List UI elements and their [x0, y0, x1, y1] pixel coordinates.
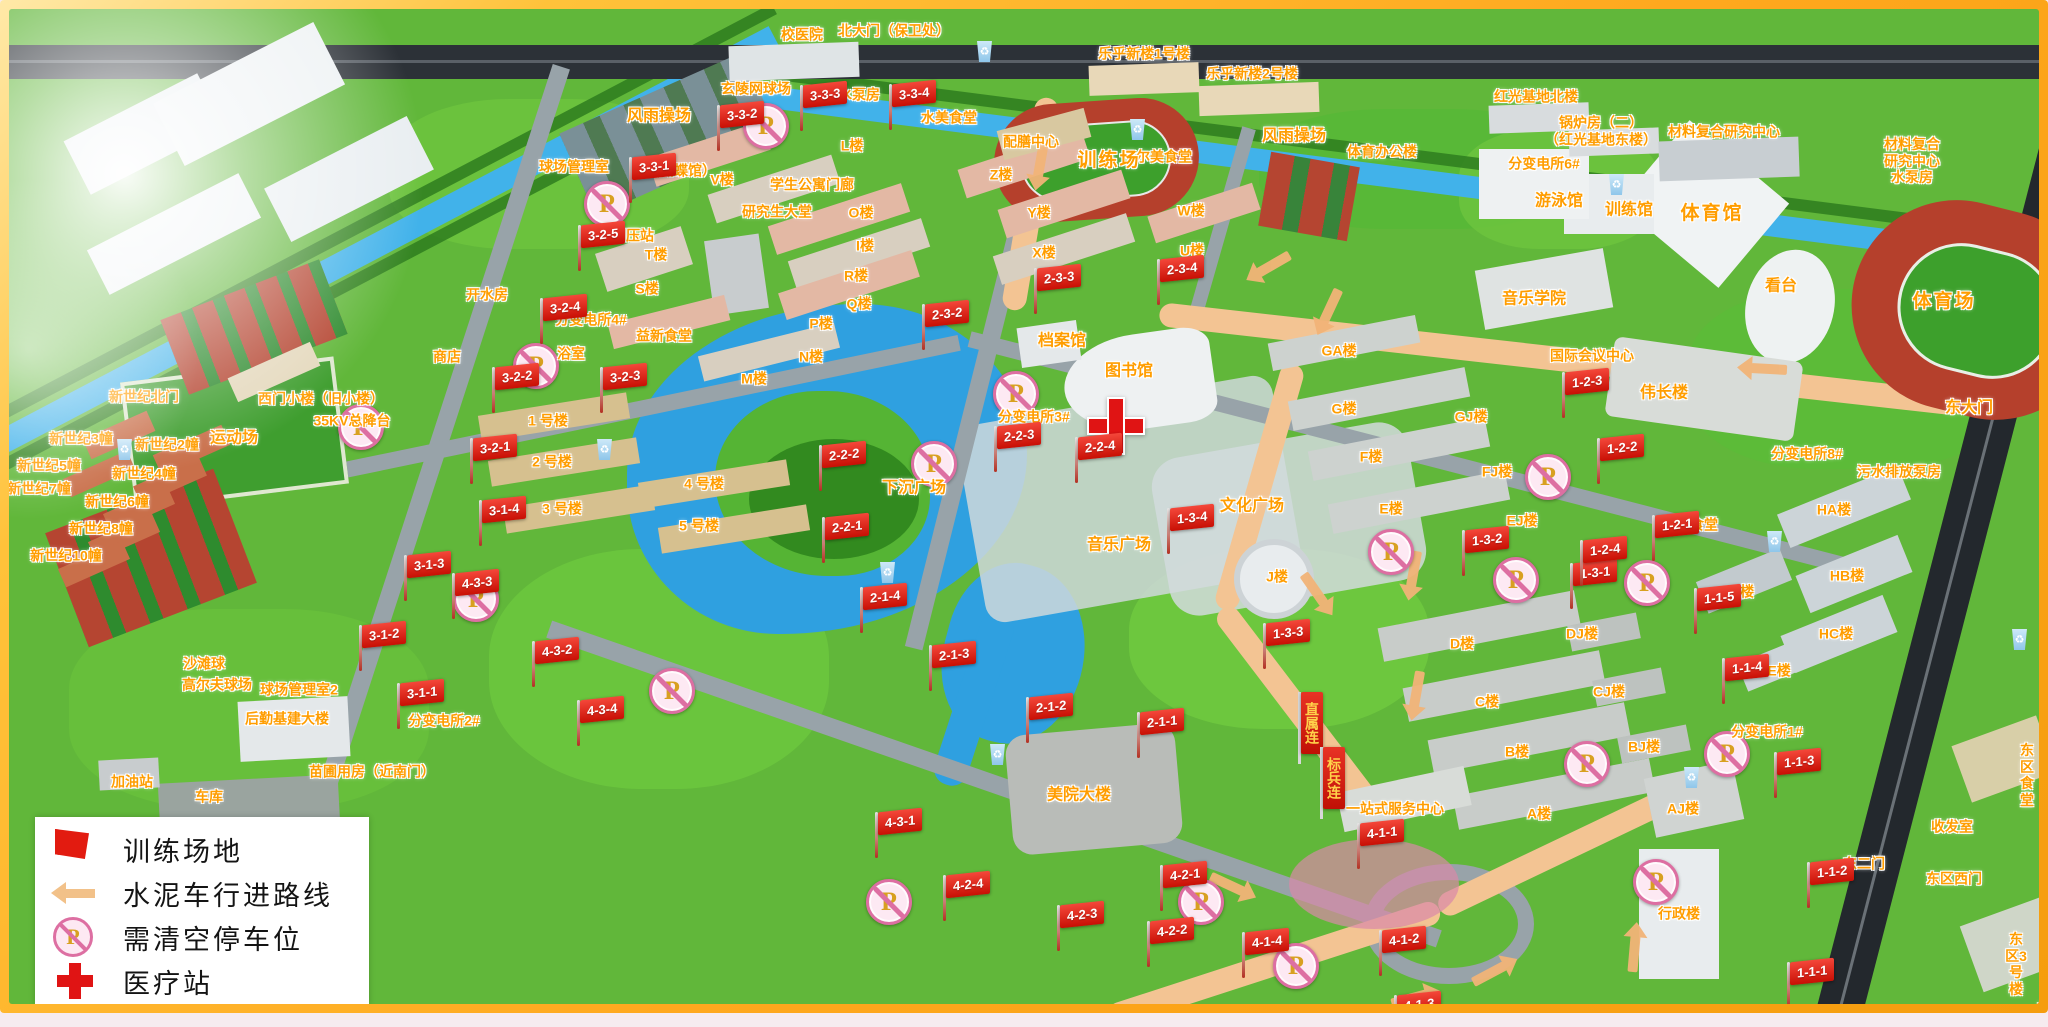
flag-label: 1-3-3	[1266, 619, 1310, 647]
route-arrow-icon	[1256, 251, 1292, 278]
place-label: 北大门（保卫处）	[838, 23, 950, 40]
place-label: 高尔夫球场	[182, 677, 252, 694]
place-label: 新世纪北门	[109, 389, 179, 406]
flag-label: 1-1-5	[1697, 584, 1741, 612]
place-label: 运动场	[210, 430, 258, 449]
flag-label: 4-2-3	[1060, 901, 1104, 929]
place-label: 乐乎新楼1号楼	[1098, 46, 1190, 63]
place-label: 尔美食堂	[1136, 149, 1192, 166]
flag-label: 4-1-2	[1382, 926, 1426, 954]
place-label: 新世纪10幢	[30, 548, 102, 565]
place-label: T楼	[645, 247, 668, 264]
flag-label: 3-2-4	[543, 294, 587, 322]
flag-label: 1-2-1	[1655, 511, 1699, 539]
legend-item: 训练场地	[51, 827, 363, 871]
place-label: 训练馆	[1605, 202, 1653, 221]
place-label: 材料复合 研究中心 水泵房	[1884, 136, 1940, 186]
place-label: 2 号楼	[532, 454, 572, 471]
place-label: 文化广场	[1220, 498, 1284, 517]
place-label: 3 号楼	[542, 501, 582, 518]
legend-item: 水泥车行进路线	[51, 871, 363, 915]
place-label: Z楼	[990, 167, 1013, 184]
place-label: 新世纪2幢	[135, 437, 199, 454]
flag-label: 2-1-1	[1140, 708, 1184, 736]
flag-label: 4-2-2	[1150, 917, 1194, 945]
place-label: 东区	[2037, 1000, 2039, 1004]
place-label: 车库	[195, 789, 223, 806]
place-label: HC楼	[1819, 626, 1853, 643]
place-label: BJ楼	[1628, 739, 1660, 756]
place-label: EJ楼	[1506, 513, 1537, 530]
place-label: P楼	[809, 316, 832, 333]
flag-label: 1-1-1	[1790, 958, 1834, 986]
place-label: 后勤基建大楼	[245, 711, 329, 728]
place-label: 下沉广场	[882, 480, 946, 499]
place-label: C楼	[1475, 694, 1499, 711]
place-label: 伟长楼	[1640, 385, 1688, 404]
place-label: 学生公寓门廊	[770, 177, 854, 194]
flag-label: 2-1-3	[932, 641, 976, 669]
place-label: N楼	[799, 349, 823, 366]
legend-icon	[51, 827, 97, 871]
place-label: 分变电所6#	[1508, 156, 1580, 173]
place-label: 浴室	[557, 346, 585, 363]
flag-label: 2-3-3	[1037, 264, 1081, 292]
map-decor	[1658, 137, 1799, 182]
place-label: 校医院	[781, 27, 823, 44]
legend-label: 医疗站	[123, 962, 213, 1001]
flag-label: 2-1-4	[863, 583, 907, 611]
place-label: GA楼	[1322, 343, 1357, 360]
legend-label: 训练场地	[123, 830, 243, 869]
place-label: HA楼	[1817, 502, 1851, 519]
place-label: 分变电所8#	[1771, 446, 1843, 463]
flag-label: 1-1-2	[1810, 858, 1854, 886]
place-label: 污水排放泵房	[1857, 464, 1941, 481]
legend-icon: P	[51, 915, 97, 959]
flag-label: 3-2-5	[581, 221, 625, 249]
recycle-bin-icon: ♻	[989, 744, 1006, 765]
flag-label: 3-2-3	[603, 363, 647, 391]
flag-label: 标兵连	[1323, 747, 1345, 809]
place-label: 新世纪5幢	[17, 458, 81, 475]
map-decor	[238, 696, 351, 762]
map-decor	[1475, 248, 1613, 330]
flag-label: 4-3-4	[580, 696, 624, 724]
place-label: DJ楼	[1566, 626, 1598, 643]
flag-label: 4-3-1	[878, 808, 922, 836]
place-label: 商店	[433, 349, 461, 366]
flag-label: 4-1-4	[1245, 928, 1289, 956]
flag-label: 1-3-4	[1170, 504, 1214, 532]
flag-label: 3-3-1	[632, 153, 676, 181]
training-flag-icon	[55, 829, 89, 859]
legend-icon	[51, 871, 97, 915]
flag-label: 直属连	[1301, 692, 1323, 754]
place-label: I楼	[856, 238, 874, 255]
flag-label: 1-2-2	[1600, 434, 1644, 462]
map-decor	[1258, 152, 1360, 241]
place-label: 加油站	[111, 774, 153, 791]
legend-item: P需清空停车位	[51, 915, 363, 959]
route-arrow-icon	[1319, 288, 1343, 325]
place-label: 游泳馆	[1535, 193, 1583, 212]
no-parking-icon: P	[1368, 529, 1414, 575]
map-decor	[1199, 82, 1320, 116]
flag-label: 3-3-4	[892, 80, 936, 108]
flag-label: 3-3-2	[720, 101, 764, 129]
place-label: 训练场	[1077, 150, 1140, 172]
flag-label: 3-1-3	[407, 551, 451, 579]
place-label: 音乐广场	[1087, 537, 1151, 556]
no-parking-icon: P	[53, 917, 93, 957]
flag-label: 1-3-2	[1465, 526, 1509, 554]
flag-label: 1-2-4	[1583, 536, 1627, 564]
place-label: 看台	[1765, 278, 1797, 297]
place-label: 新世纪7幢	[9, 481, 71, 498]
place-label: 新世纪4幢	[112, 466, 176, 483]
place-label: R楼	[844, 268, 868, 285]
place-label: L楼	[841, 138, 864, 155]
legend-label: 需清空停车位	[123, 918, 303, 957]
place-label: 新世纪8幢	[69, 521, 133, 538]
place-label: 东区3号楼	[2005, 931, 2028, 997]
no-parking-icon: P	[866, 879, 912, 925]
place-label: 新世纪6幢	[85, 494, 149, 511]
flag-label: 3-2-2	[495, 363, 539, 391]
place-label: 分变电所2#	[408, 713, 480, 730]
flag-label: 4-1-1	[1360, 819, 1404, 847]
place-label: 配膳中心	[1003, 134, 1059, 151]
place-label: O楼	[849, 205, 874, 222]
place-label: 分变电所1#	[1731, 724, 1803, 741]
place-label: 锅炉房（二） （红光基地东楼）	[1545, 114, 1657, 147]
flag-label: 3-3-3	[803, 81, 847, 109]
no-parking-icon: P	[1493, 557, 1539, 603]
place-label: 乐乎新楼2号楼	[1206, 66, 1298, 83]
legend-item: 医疗站	[51, 959, 363, 1003]
place-label: 美院大楼	[1047, 787, 1111, 806]
no-parking-icon: P	[649, 668, 695, 714]
flag-label: 3-1-1	[400, 679, 444, 707]
place-label: 5 号楼	[679, 518, 719, 535]
place-label: 球场管理室2	[260, 682, 338, 699]
place-label: CJ楼	[1593, 684, 1625, 701]
place-label: 玄陵网球场	[721, 81, 791, 98]
flag-label: 4-2-1	[1163, 861, 1207, 889]
place-label: 风雨操场	[1262, 128, 1326, 147]
place-label: HB楼	[1830, 568, 1864, 585]
flag-label: 4-1-3	[1397, 991, 1441, 1004]
flag-label: 2-2-1	[825, 513, 869, 541]
place-label: 体育场	[1912, 291, 1975, 313]
map-decor	[1289, 839, 1459, 929]
place-label: G楼	[1332, 401, 1357, 418]
place-label: GJ楼	[1455, 409, 1488, 426]
legend: 训练场地水泥车行进路线P需清空停车位医疗站	[35, 817, 369, 1004]
place-label: X楼	[1032, 245, 1055, 262]
flag-label: 4-2-4	[946, 871, 990, 899]
place-label: 东区西门	[1926, 871, 1982, 888]
route-arrow-icon	[65, 889, 95, 898]
map-frame: 训练场地水泥车行进路线P需清空停车位医疗站 校医院北大门（保卫处）乐乎新楼1号楼…	[0, 0, 2048, 1013]
place-label: 4 号楼	[684, 476, 724, 493]
place-label: 1 号楼	[528, 413, 568, 430]
flag-label: 3-2-1	[473, 434, 517, 462]
no-parking-icon: P	[1624, 560, 1670, 606]
medical-cross-icon	[57, 963, 93, 999]
place-label: Y楼	[1027, 205, 1050, 222]
place-label: 收发室	[1931, 819, 1973, 836]
flag-label: 1-2-3	[1565, 368, 1609, 396]
recycle-bin-icon: ♻	[2011, 629, 2028, 650]
flag-label: 2-2-4	[1078, 433, 1122, 461]
place-label: 档案馆	[1038, 333, 1086, 352]
place-label: 体育馆	[1680, 203, 1743, 225]
map-decor	[1089, 62, 1200, 96]
place-label: 国际会议中心	[1550, 348, 1634, 365]
place-label: 苗圃用房（近南门）	[309, 764, 435, 781]
place-label: D楼	[1450, 636, 1474, 653]
flag-label: 2-1-2	[1029, 693, 1073, 721]
place-label: 新世纪3幢	[49, 431, 113, 448]
place-label: 材料复合研究中心	[1668, 124, 1780, 141]
place-label: 西门小楼（旧小楼）	[258, 391, 384, 408]
place-label: 球场管理室	[539, 159, 609, 176]
no-parking-icon: P	[1633, 859, 1679, 905]
route-arrow-icon	[1751, 363, 1787, 375]
place-label: 东大门	[1945, 400, 1993, 419]
place-label: 风雨操场	[627, 108, 691, 127]
flag-label: 3-1-2	[362, 621, 406, 649]
place-label: 水美食堂	[921, 110, 977, 127]
flag-label: 4-3-2	[535, 637, 579, 665]
flag-label: 2-2-3	[997, 422, 1041, 450]
place-label: Q楼	[847, 296, 872, 313]
place-label: B楼	[1505, 744, 1529, 761]
flag-label: 3-1-4	[482, 496, 526, 524]
flag-label: 1-1-4	[1725, 654, 1769, 682]
legend-label: 水泥车行进路线	[123, 874, 333, 913]
place-label: 体育办公楼	[1347, 144, 1417, 161]
place-label: 开水房	[466, 287, 508, 304]
place-label: F楼	[1360, 449, 1383, 466]
map-decor	[153, 22, 345, 166]
legend-icon	[51, 959, 97, 1003]
flag-label: 1-1-3	[1777, 748, 1821, 776]
place-label: AJ楼	[1667, 801, 1699, 818]
flag-label: 4-3-3	[455, 569, 499, 597]
place-label: A楼	[1527, 806, 1551, 823]
flag-label: 2-3-2	[925, 300, 969, 328]
campus-map: 训练场地水泥车行进路线P需清空停车位医疗站 校医院北大门（保卫处）乐乎新楼1号楼…	[9, 9, 2039, 1004]
place-label: 东区食堂	[2020, 742, 2034, 808]
place-label: FJ楼	[1482, 464, 1512, 481]
place-label: 35KV总降台	[313, 413, 390, 430]
place-label: E楼	[1379, 501, 1402, 518]
place-label: 一站式服务中心	[1346, 801, 1444, 818]
place-label: W楼	[1177, 203, 1204, 220]
place-label: 行政楼	[1658, 906, 1700, 923]
no-parking-icon: P	[1525, 454, 1571, 500]
place-label: 图书馆	[1105, 363, 1153, 382]
place-label: 研究生大堂	[742, 204, 812, 221]
flag-label: 2-3-4	[1160, 255, 1204, 283]
map-decor	[728, 42, 859, 82]
flag-label: 2-2-2	[822, 441, 866, 469]
no-parking-icon: P	[1564, 741, 1610, 787]
place-label: 红光基地北楼	[1494, 89, 1578, 106]
place-label: 益新食堂	[636, 328, 692, 345]
place-label: 沙滩球	[183, 656, 225, 673]
place-label: J楼	[1266, 569, 1288, 586]
place-label: S楼	[635, 281, 658, 298]
place-label: M楼	[741, 371, 767, 388]
place-label: 音乐学院	[1502, 291, 1566, 310]
map-decor	[87, 173, 261, 295]
place-label: V楼	[710, 172, 733, 189]
